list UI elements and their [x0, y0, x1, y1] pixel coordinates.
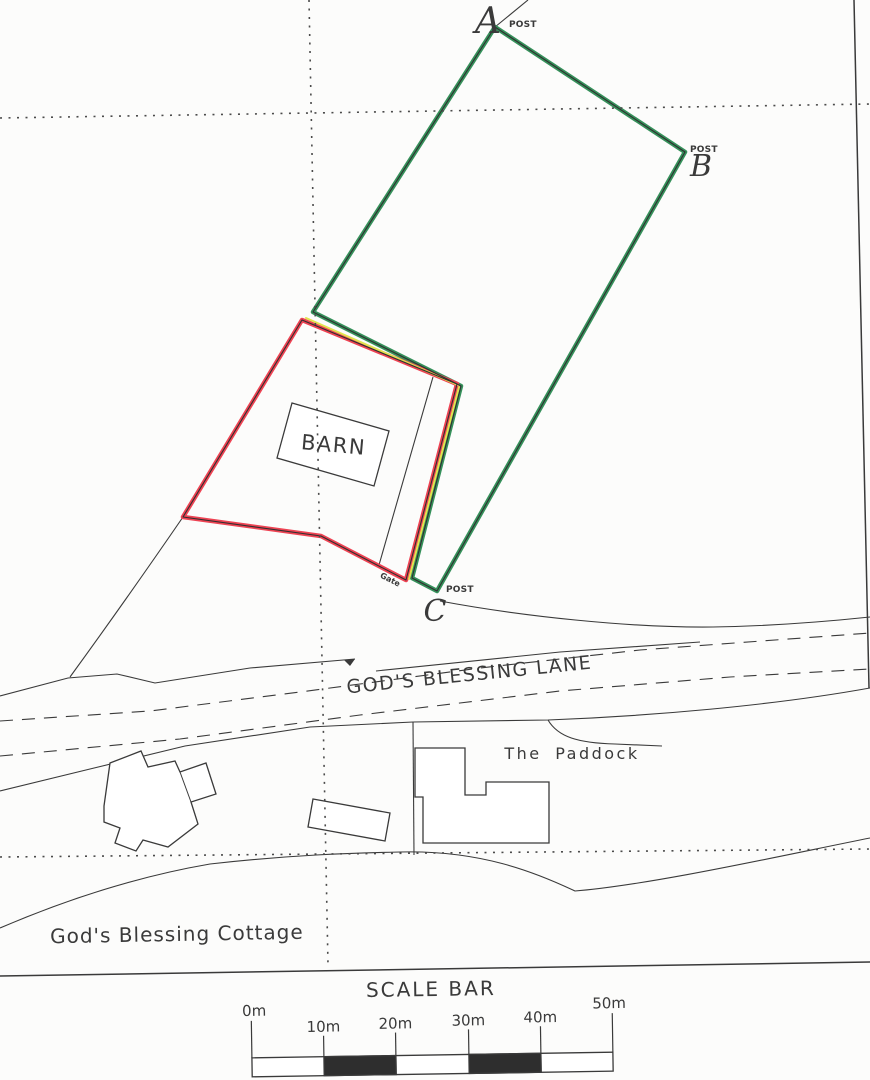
scale-bar-segment-30-40: [469, 1053, 541, 1073]
post-c-label: POST: [446, 585, 474, 595]
point-c-letter: C: [424, 594, 447, 629]
grid-dotted-horizontal-top: [0, 104, 870, 118]
scale-bar-frame: [252, 1052, 613, 1077]
south-parcel-boundary: [0, 838, 870, 928]
buildings: [104, 403, 549, 851]
barn-track-line: [379, 377, 433, 565]
cottage-label: God's Blessing Cottage: [50, 920, 304, 948]
west-field-boundary: [70, 517, 183, 677]
scale-tick-0m: [251, 1021, 252, 1058]
road-north-edge-west: [0, 659, 355, 696]
right-map-border: [854, 0, 869, 688]
scale-label-0m: 0m: [242, 1002, 266, 1020]
road-edge-arrow-mark: [344, 659, 355, 666]
scale-label-30m: 30m: [451, 1011, 485, 1030]
field-boundary-ink: [313, 27, 685, 591]
bottom-map-border: [0, 962, 870, 976]
paddock-north-boundary-spur: [548, 720, 662, 746]
scale-label-40m: 40m: [523, 1008, 557, 1027]
site-plan-canvas: GOD'S BLESSING LANE The Paddock God's Bl…: [0, 0, 870, 1080]
grid-dotted-horizontal-bottom: [0, 849, 870, 857]
scale-label-10m: 10m: [306, 1017, 340, 1036]
field-boundary-green: [313, 27, 685, 591]
property-divider-line: [413, 722, 414, 855]
road-north-edge-east: [440, 601, 870, 627]
point-a-letter: A: [472, 1, 501, 42]
outbuilding-outline: [308, 799, 390, 841]
scale-label-20m: 20m: [378, 1014, 412, 1033]
scale-bar-title: SCALE BAR: [366, 976, 496, 1002]
post-b-label: POST: [690, 145, 718, 155]
cottage-building-outline: [104, 751, 216, 851]
scale-label-50m: 50m: [592, 994, 626, 1013]
scale-bar: SCALE BAR 0m 10m 20m 30m 40m 50m: [242, 974, 627, 1077]
post-a-label: POST: [509, 20, 537, 30]
scale-bar-segment-10-20: [324, 1056, 396, 1076]
paddock-label: The Paddock: [503, 744, 639, 763]
shared-boundary-yellow-east: [409, 387, 459, 579]
scale-tick-50m: [612, 1013, 613, 1052]
